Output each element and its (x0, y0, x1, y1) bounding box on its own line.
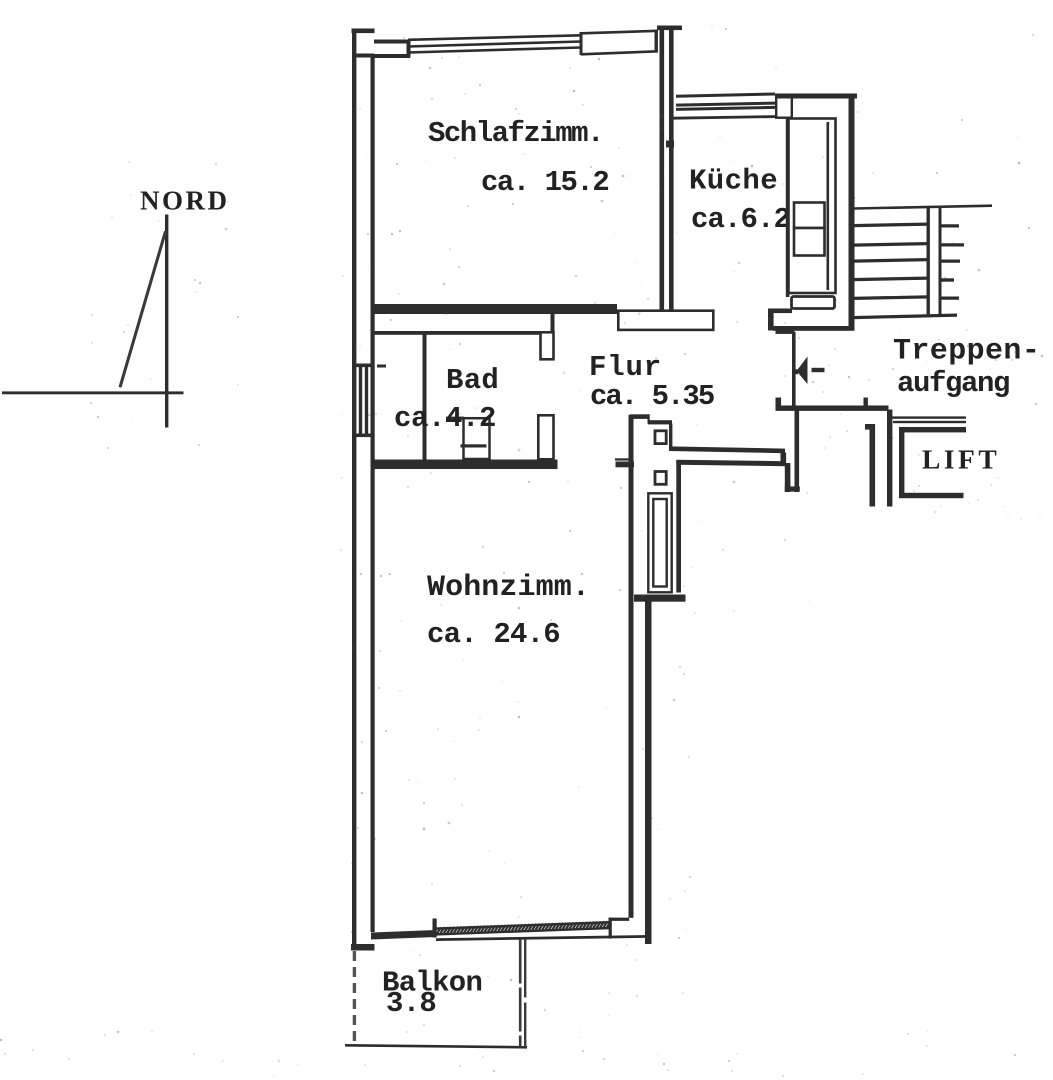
svg-text:ca.6.2: ca.6.2 (691, 203, 790, 236)
svg-text:Bad: Bad (446, 364, 499, 397)
svg-text:Treppen-: Treppen- (893, 335, 1040, 369)
svg-text:LIFT: LIFT (922, 444, 1000, 475)
svg-text:NORD: NORD (140, 186, 230, 216)
svg-text:ca. 5.35: ca. 5.35 (590, 380, 714, 413)
svg-text:ca.4.2: ca.4.2 (394, 402, 496, 435)
svg-text:ca. 15.2: ca. 15.2 (481, 166, 608, 199)
svg-text:3.8: 3.8 (386, 987, 436, 1020)
svg-text:ca. 24.6: ca. 24.6 (427, 618, 560, 651)
svg-text:Wohnzimm.: Wohnzimm. (427, 571, 590, 605)
svg-text:aufgang: aufgang (897, 367, 1009, 400)
svg-text:Schlafzimm.: Schlafzimm. (428, 117, 603, 150)
svg-text:Küche: Küche (689, 165, 778, 198)
